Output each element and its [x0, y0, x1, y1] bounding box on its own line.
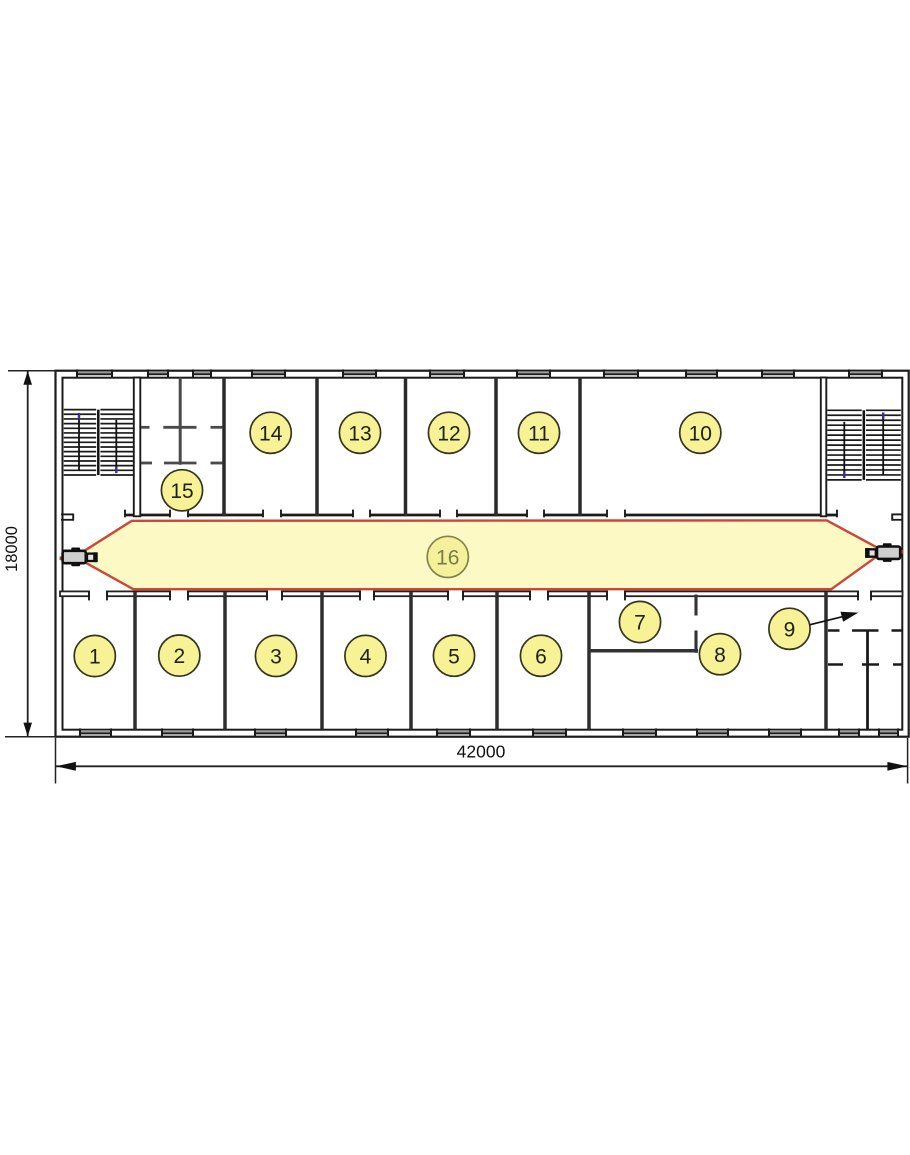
- svg-text:1: 1: [89, 646, 101, 669]
- svg-text:9: 9: [784, 618, 796, 641]
- svg-text:7: 7: [634, 612, 646, 635]
- svg-text:14: 14: [259, 422, 283, 445]
- svg-text:18000: 18000: [3, 526, 21, 572]
- svg-text:4: 4: [360, 646, 372, 669]
- svg-text:6: 6: [535, 645, 547, 668]
- svg-text:11: 11: [528, 422, 550, 445]
- svg-text:5: 5: [448, 645, 460, 668]
- svg-text:10: 10: [689, 422, 712, 445]
- svg-text:16: 16: [436, 547, 459, 570]
- svg-text:12: 12: [437, 422, 460, 445]
- svg-text:2: 2: [173, 645, 185, 668]
- svg-text:13: 13: [348, 422, 371, 445]
- svg-text:42000: 42000: [457, 742, 506, 762]
- svg-text:3: 3: [270, 646, 282, 669]
- svg-text:15: 15: [170, 480, 193, 503]
- svg-text:8: 8: [714, 644, 726, 667]
